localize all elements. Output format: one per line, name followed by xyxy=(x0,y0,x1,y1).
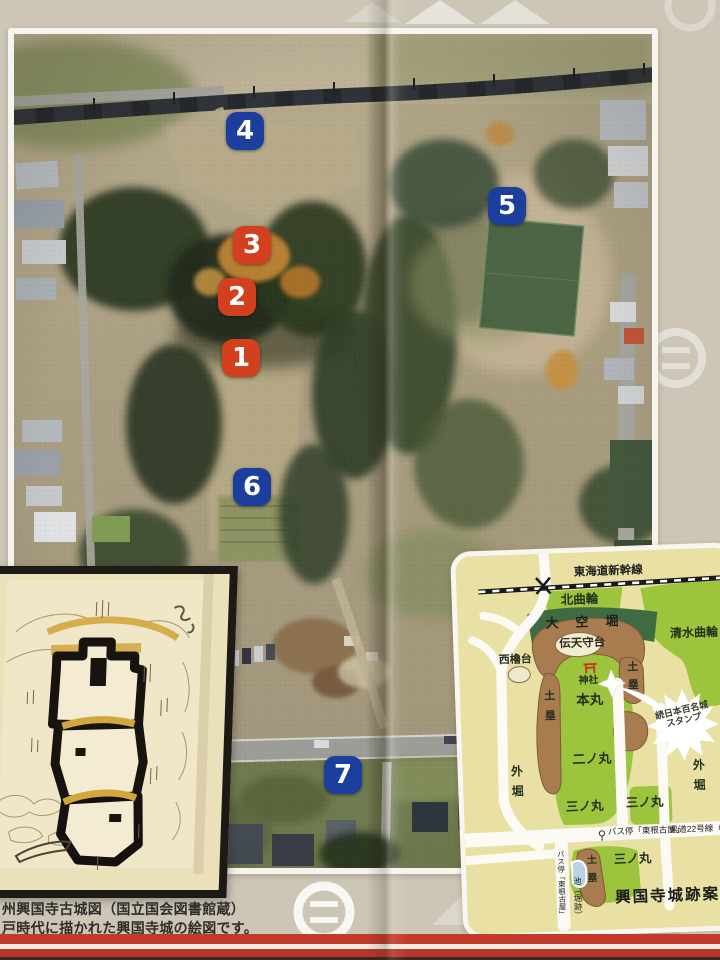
label-sannomaru-3: 三ノ丸 xyxy=(614,851,652,867)
pamphlet-page: { "colors": { "background": "#cdc6b6", "… xyxy=(0,0,720,960)
label-sotobori-left: 外堀 xyxy=(508,765,523,805)
label-shimizu-kuruwa: 清水曲輪 xyxy=(670,626,718,641)
stripe-red-top xyxy=(0,934,720,944)
marker-5: 5 xyxy=(488,187,526,225)
label-kita-kuruwa: 北曲輪 xyxy=(561,592,599,608)
site-map-title: 興国寺城跡案内 xyxy=(615,885,720,907)
old-map-caption: 州興国寺古城図（国立国会図書館蔵） 戸時代に描かれた興国寺城の絵図です。 xyxy=(2,900,252,938)
marker-1: 1 xyxy=(222,339,260,377)
label-dorui-bottom: 土塁 xyxy=(584,854,597,890)
stripe-red-bottom xyxy=(0,949,720,957)
old-map-drawing xyxy=(0,574,214,874)
label-dorui-left: 土塁 xyxy=(542,689,556,729)
label-sannomaru-1: 三ノ丸 xyxy=(566,799,604,815)
label-kendo-22: 県道22号線（根 xyxy=(670,823,720,835)
label-jinja: 神社 xyxy=(578,675,598,687)
label-shinkansen: 東海道新幹線 xyxy=(574,564,643,580)
ring-emblem-bottom xyxy=(298,886,350,938)
label-den-tenshudai: 伝天守台 xyxy=(559,637,605,652)
label-honmaru: 本丸 xyxy=(576,692,604,708)
label-dorui-right: 土塁 xyxy=(625,661,639,697)
site-map-inset: 東海道新幹線 北曲輪 大空堀 伝天守台 清水曲輪 西櫓台 神社 本丸 土塁 土塁… xyxy=(450,542,720,940)
label-bus-stop-vertical: バス停「東根古屋」 xyxy=(555,850,566,918)
label-ike-horiato: 池（堀跡） xyxy=(571,877,582,920)
label-okarabori: 大空堀 xyxy=(545,614,635,632)
marker-2: 2 xyxy=(218,278,256,316)
marker-7: 7 xyxy=(324,756,362,794)
marker-6: 6 xyxy=(233,468,271,506)
label-nishi-yagura-dai: 西櫓台 xyxy=(499,653,532,667)
label-ninomaru: 二ノ丸 xyxy=(572,752,612,768)
marker-4: 4 xyxy=(226,112,264,150)
old-map-inset xyxy=(0,566,238,898)
label-sotobori-right: 外堀 xyxy=(690,758,705,798)
marker-3: 3 xyxy=(233,226,271,264)
old-map-caption-line1: 州興国寺古城図（国立国会図書館蔵） xyxy=(2,900,252,919)
label-sannomaru-2: 三ノ丸 xyxy=(626,795,664,811)
